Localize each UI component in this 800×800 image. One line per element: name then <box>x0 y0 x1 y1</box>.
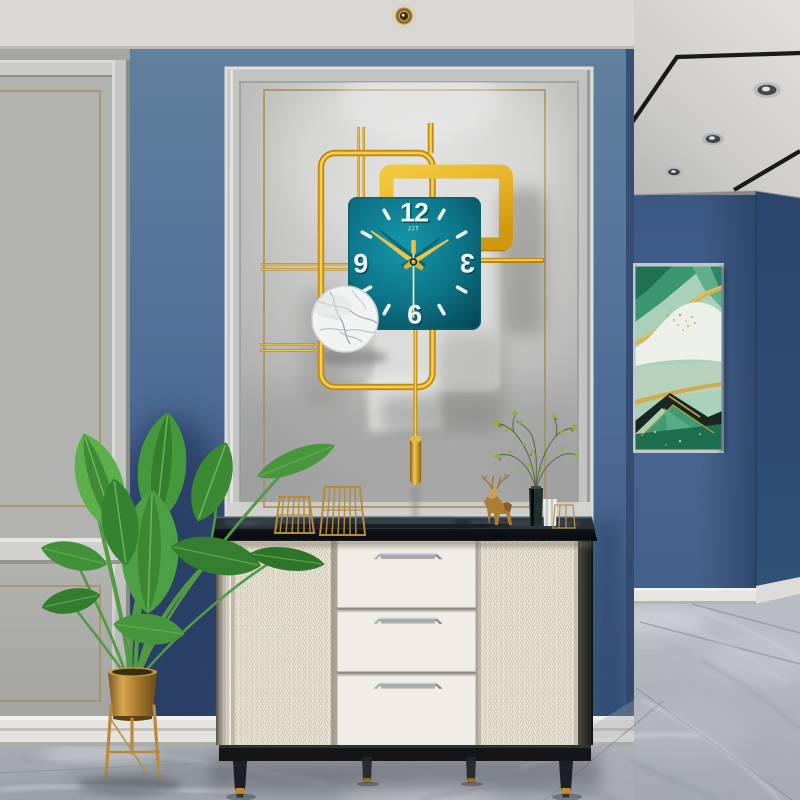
svg-text:JJT: JJT <box>408 226 420 233</box>
svg-text:6: 6 <box>407 300 422 330</box>
svg-text:9: 9 <box>353 249 368 279</box>
svg-text:12: 12 <box>400 198 428 228</box>
svg-text:3: 3 <box>460 249 475 279</box>
